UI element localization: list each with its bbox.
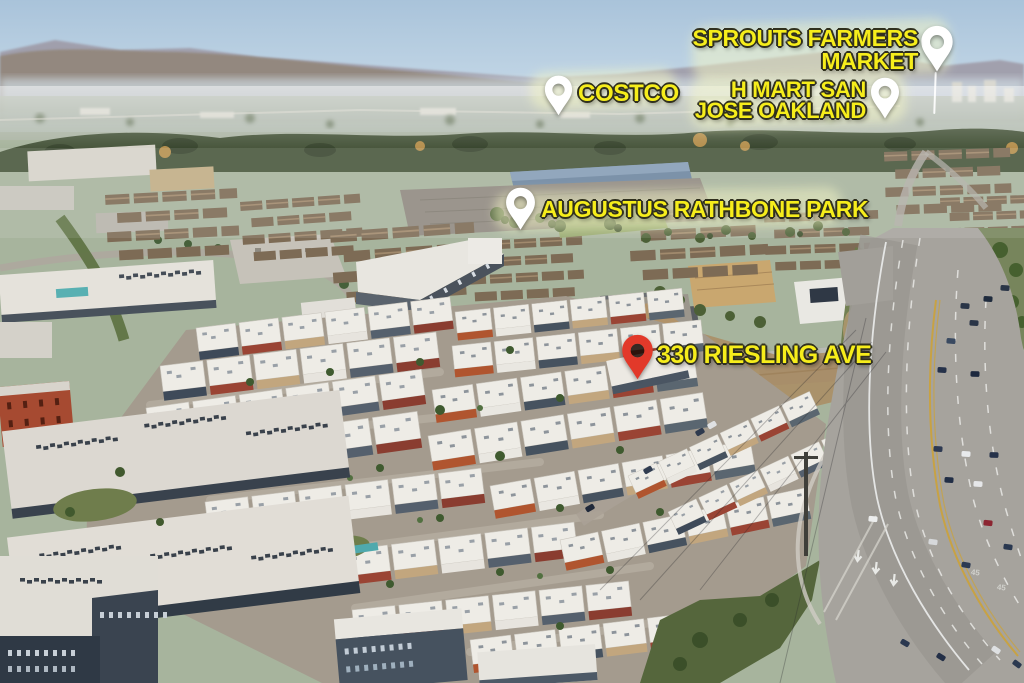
label-sprouts-farmers-market: SPROUTS FARMERS MARKET [692,27,918,73]
map-pin-costco-icon [542,74,575,120]
label-sprouts-line2: MARKET [692,50,918,73]
label-augustus-rathbone-park: AUGUSTUS RATHBONE PARK [541,196,868,223]
map-pin-subject-property-icon [619,333,656,385]
map-pin-park-icon [503,186,538,235]
map-pin-sprouts-icon [918,24,956,77]
speed-limit-marking: 45 [970,568,980,578]
label-hmart-line2: JOSE OAKLAND [695,100,866,121]
speed-limit-marking: 45 [996,583,1006,593]
label-sprouts-line1: SPROUTS FARMERS [692,27,918,50]
label-h-mart: H MART SAN JOSE OAKLAND [695,79,866,121]
aerial-listing-photo: 45 45 [0,0,1024,683]
label-costco: COSTCO [578,80,679,108]
label-hmart-line1: H MART SAN [695,79,866,100]
map-pin-hmart-icon [868,76,902,124]
apartment-building-bottom-left [0,556,167,683]
label-subject-address: 330 RIESLING AVE [657,341,871,370]
